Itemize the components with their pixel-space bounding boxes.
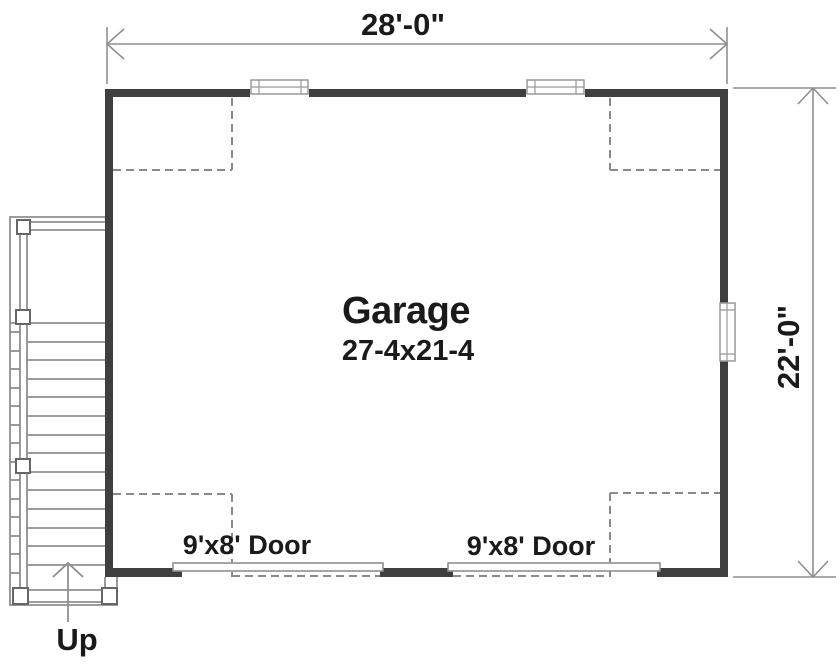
stair-balusters [10,332,20,573]
wall-bottom-right-segment [657,568,728,577]
stair-treads [10,323,105,565]
door-label-1: 9'x8' Door [183,530,311,561]
window-icon-top-2 [526,80,585,98]
right-dimension-label: 22'-0" [771,305,807,389]
garage-door-panel-1 [173,563,383,571]
up-arrow-icon [53,563,83,622]
staircase [10,217,118,605]
stairs-up-label: Up [56,622,97,658]
wall-bottom-middle-segment [380,568,453,577]
garage-walls [105,89,728,577]
room-name-label: Garage [342,290,470,333]
wall-top [105,89,728,97]
top-dimension-label: 28'-0" [361,7,445,43]
window-icon-top-1 [250,80,309,98]
door-label-2: 9'x8' Door [467,531,595,562]
wall-left [105,89,113,577]
wall-bottom-left-segment [105,568,182,577]
garage-door-panel-2 [448,563,660,571]
room-size-label: 27-4x21-4 [342,335,474,368]
window-icon-right [719,303,735,361]
floor-plan: 28'-0" 22'-0" Garage 27-4x21-4 9'x8' Doo… [0,0,840,664]
